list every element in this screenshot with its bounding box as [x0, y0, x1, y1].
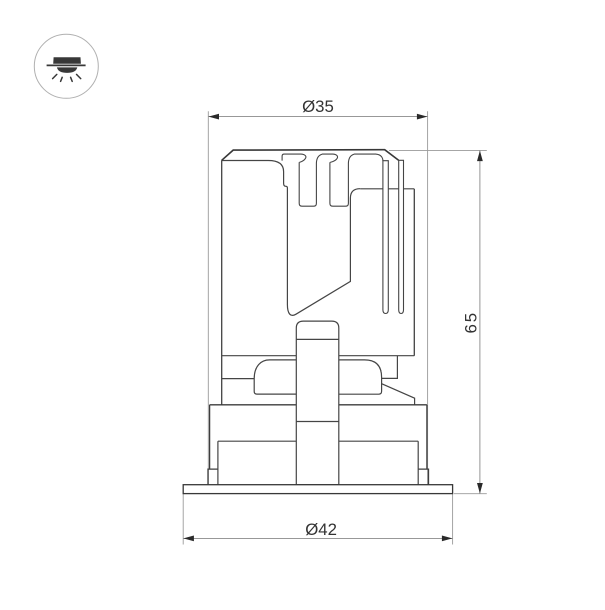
svg-text:65: 65	[461, 311, 480, 333]
svg-text:Ø35: Ø35	[302, 97, 334, 116]
svg-text:Ø42: Ø42	[305, 520, 337, 539]
